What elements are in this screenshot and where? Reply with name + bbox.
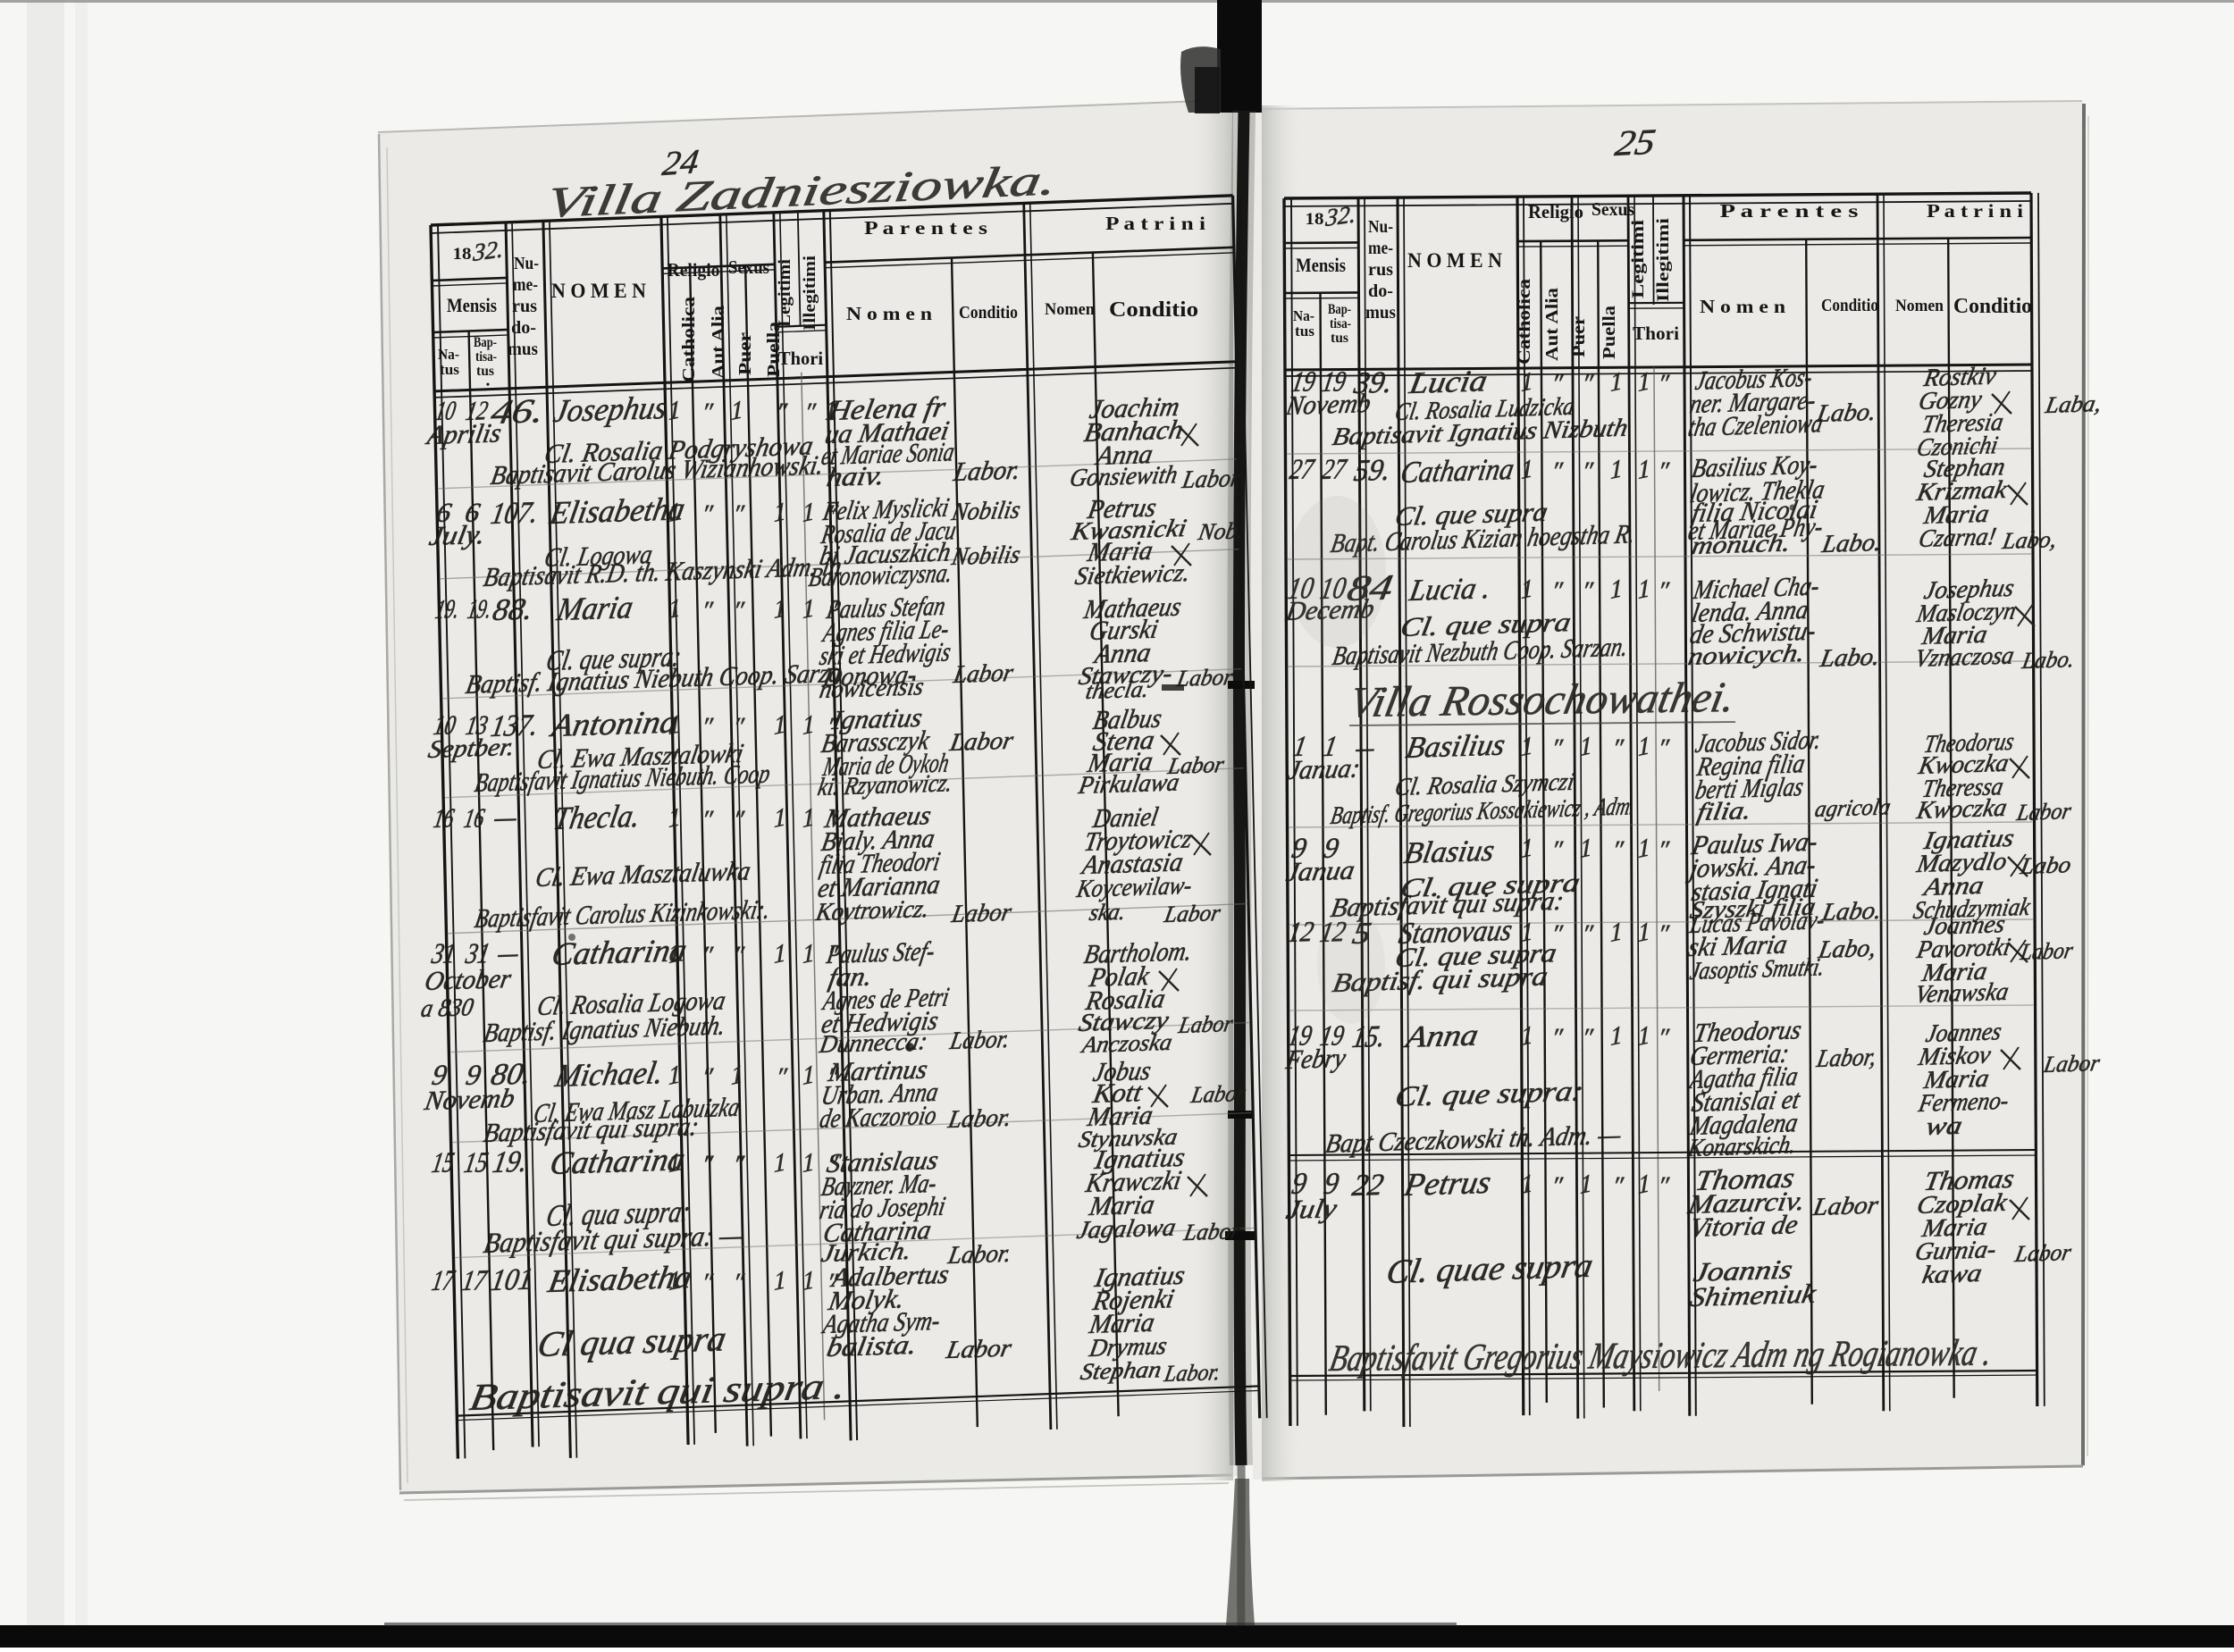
svg-text:1: 1 bbox=[802, 803, 815, 834]
svg-text:agricola: agricola bbox=[1813, 793, 1893, 821]
svg-text:Labor: Labor bbox=[944, 1335, 1015, 1364]
svg-text:1: 1 bbox=[668, 1266, 681, 1296]
svg-text:1: 1 bbox=[668, 498, 681, 528]
svg-text:Aprilis: Aprilis bbox=[424, 418, 504, 450]
svg-text:Gonsiewith: Gonsiewith bbox=[1068, 461, 1180, 492]
svg-text:1: 1 bbox=[1638, 1170, 1650, 1200]
svg-text:Catharina: Catharina bbox=[1398, 452, 1517, 490]
svg-text:Thecla.: Thecla. bbox=[551, 798, 643, 836]
svg-text:Vitoria de: Vitoria de bbox=[1688, 1209, 1801, 1243]
svg-text:Koytrowicz.: Koytrowicz. bbox=[813, 895, 931, 927]
svg-text:Labor,: Labor, bbox=[1814, 1044, 1878, 1073]
svg-text:1: 1 bbox=[731, 396, 743, 426]
svg-text:1: 1 bbox=[1521, 574, 1533, 605]
svg-text:1: 1 bbox=[1610, 367, 1623, 398]
svg-text:1: 1 bbox=[1638, 918, 1650, 948]
svg-text:rus: rus bbox=[512, 297, 537, 316]
svg-text:Mensis: Mensis bbox=[447, 294, 497, 316]
svg-text:Elisabetha: Elisabetha bbox=[547, 491, 688, 531]
svg-text:Nobilis: Nobilis bbox=[949, 541, 1022, 571]
svg-text:N o m e n: N o m e n bbox=[846, 303, 932, 324]
svg-text:1: 1 bbox=[668, 1148, 681, 1178]
svg-text:Laba,: Laba, bbox=[2043, 390, 2104, 418]
svg-text:1: 1 bbox=[1610, 455, 1623, 485]
svg-text:Vznaczosa: Vznaczosa bbox=[1913, 642, 2016, 673]
svg-text:tisa-: tisa- bbox=[1330, 316, 1351, 331]
svg-text:1: 1 bbox=[668, 939, 681, 969]
svg-text:1: 1 bbox=[668, 710, 681, 741]
svg-text:Legitimi: Legitimi bbox=[776, 259, 794, 327]
svg-text:1: 1 bbox=[1610, 574, 1623, 605]
svg-text:59.: 59. bbox=[1352, 453, 1394, 488]
svg-text:Febry: Febry bbox=[1283, 1043, 1348, 1075]
svg-text:Puella: Puella bbox=[1600, 306, 1619, 359]
svg-text:Koycewilaw-: Koycewilaw- bbox=[1074, 872, 1194, 903]
svg-text:Sexus: Sexus bbox=[1592, 198, 1634, 220]
svg-text:Labo.: Labo. bbox=[1818, 643, 1883, 673]
svg-text:Janua: Janua bbox=[1284, 855, 1357, 887]
svg-text:1: 1 bbox=[1638, 732, 1650, 762]
svg-text:1: 1 bbox=[1521, 455, 1533, 485]
svg-text:tus: tus bbox=[1331, 331, 1348, 346]
svg-text:Nomen: Nomen bbox=[1045, 300, 1095, 319]
svg-text:1: 1 bbox=[731, 1061, 743, 1091]
svg-text:thecla.: thecla. bbox=[1084, 676, 1151, 704]
svg-text:1: 1 bbox=[1521, 1021, 1533, 1052]
svg-text:1: 1 bbox=[1580, 732, 1592, 762]
svg-text:19.: 19. bbox=[491, 1145, 531, 1179]
svg-text:Conditio: Conditio bbox=[959, 303, 1018, 323]
svg-text:balista.: balista. bbox=[825, 1329, 920, 1363]
svg-text:Labor: Labor bbox=[1174, 664, 1236, 692]
svg-text:de Kaczoroio: de Kaczoroio bbox=[818, 1100, 939, 1134]
svg-text:do-: do- bbox=[1368, 281, 1393, 301]
svg-text:32.: 32. bbox=[472, 235, 505, 266]
svg-text:1: 1 bbox=[1638, 455, 1650, 485]
svg-text:Labor: Labor bbox=[2041, 1050, 2103, 1078]
svg-text:Lucia .: Lucia . bbox=[1407, 571, 1494, 608]
svg-text:Labor: Labor bbox=[947, 727, 1017, 757]
svg-text:Labo.: Labo. bbox=[1819, 529, 1885, 558]
svg-text:1: 1 bbox=[774, 1266, 786, 1296]
svg-text:kawa: kawa bbox=[1920, 1260, 1985, 1289]
svg-text:1: 1 bbox=[802, 498, 815, 528]
svg-text:a 830: a 830 bbox=[419, 994, 476, 1023]
svg-text:Blasius: Blasius bbox=[1402, 834, 1498, 870]
svg-text:1: 1 bbox=[802, 939, 815, 969]
svg-text:1: 1 bbox=[774, 710, 786, 741]
svg-text:1: 1 bbox=[1580, 834, 1592, 864]
svg-text:Labor.: Labor. bbox=[1162, 1359, 1222, 1387]
svg-text:Villa Rossochowathei.: Villa Rossochowathei. bbox=[1346, 674, 1739, 726]
svg-text:1: 1 bbox=[1580, 1170, 1592, 1200]
svg-text:1: 1 bbox=[1521, 1170, 1533, 1200]
svg-text:Thori: Thori bbox=[778, 348, 823, 369]
svg-text:Nu-: Nu- bbox=[514, 254, 539, 273]
svg-text:Sexus: Sexus bbox=[728, 256, 769, 278]
svg-text:Labo.: Labo. bbox=[1819, 897, 1885, 927]
svg-text:1: 1 bbox=[802, 1148, 815, 1178]
svg-text:1: 1 bbox=[1638, 834, 1650, 864]
svg-text:1: 1 bbox=[1610, 918, 1623, 948]
svg-text:Pirkulawa: Pirkulawa bbox=[1076, 769, 1181, 800]
svg-text:Labor: Labor bbox=[1162, 900, 1223, 927]
svg-text:Venawska: Venawska bbox=[1913, 978, 2011, 1009]
svg-text:1: 1 bbox=[802, 1266, 815, 1296]
svg-text:1: 1 bbox=[802, 594, 815, 625]
svg-text:Religio: Religio bbox=[1528, 201, 1583, 222]
svg-text:1: 1 bbox=[1638, 367, 1650, 398]
svg-text:15.: 15. bbox=[1350, 1019, 1389, 1054]
svg-text:Michael.: Michael. bbox=[552, 1054, 667, 1094]
svg-text:Labor: Labor bbox=[2014, 798, 2074, 826]
svg-text:Nobilis: Nobilis bbox=[949, 497, 1022, 526]
svg-text:Nomen: Nomen bbox=[1895, 297, 1944, 315]
svg-text:me-: me- bbox=[1368, 239, 1393, 258]
svg-text:Czarna!: Czarna! bbox=[1917, 523, 1999, 553]
svg-text:Conditio: Conditio bbox=[1953, 295, 2032, 318]
svg-text:Labor: Labor bbox=[1181, 1218, 1243, 1245]
svg-text:Anczoska: Anczoska bbox=[1079, 1029, 1174, 1058]
svg-text:Kwoczka: Kwoczka bbox=[1914, 794, 2009, 825]
svg-text:1: 1 bbox=[1521, 367, 1533, 398]
svg-text:Catholica: Catholica bbox=[679, 297, 699, 382]
svg-text:Novemb: Novemb bbox=[1283, 388, 1373, 421]
svg-text:1: 1 bbox=[1638, 1021, 1650, 1052]
svg-text:July: July bbox=[1284, 1193, 1340, 1225]
svg-text:Cl. quae supra: Cl. quae supra bbox=[1383, 1247, 1595, 1291]
svg-text:mus: mus bbox=[508, 340, 538, 359]
svg-text:Konarskich.: Konarskich. bbox=[1685, 1131, 1798, 1162]
svg-text:Aut Alia: Aut Alia bbox=[709, 306, 728, 379]
svg-text:25: 25 bbox=[1613, 122, 1659, 164]
svg-text:Novemb: Novemb bbox=[422, 1083, 517, 1116]
svg-text:Shimeniuk: Shimeniuk bbox=[1688, 1279, 1819, 1312]
svg-text:wa: wa bbox=[1924, 1112, 1965, 1141]
svg-text:N o m e n: N o m e n bbox=[1700, 296, 1785, 317]
svg-text:Labor.: Labor. bbox=[945, 1104, 1013, 1134]
svg-text:1: 1 bbox=[774, 594, 786, 625]
svg-text:monuch.: monuch. bbox=[1690, 530, 1793, 560]
svg-text:1: 1 bbox=[668, 396, 681, 426]
svg-text:Catholica: Catholica bbox=[1515, 279, 1534, 365]
svg-text:Religio: Religio bbox=[668, 259, 720, 281]
svg-text:88.: 88. bbox=[491, 592, 536, 627]
svg-text:Labor: Labor bbox=[1810, 1192, 1882, 1221]
svg-text:Labor: Labor bbox=[1176, 1010, 1236, 1038]
svg-text:Petrus: Petrus bbox=[1401, 1164, 1494, 1203]
svg-text:Catharina: Catharina bbox=[548, 1141, 688, 1181]
svg-text:107.: 107. bbox=[489, 496, 542, 531]
svg-text:Labo.: Labo. bbox=[2020, 646, 2077, 674]
svg-text:me-: me- bbox=[513, 275, 538, 295]
svg-text:Basilius: Basilius bbox=[1404, 728, 1508, 765]
svg-text:October: October bbox=[423, 963, 514, 996]
svg-text:Labor: Labor bbox=[951, 659, 1016, 689]
svg-text:haiv.: haiv. bbox=[825, 460, 887, 492]
svg-text:Conditio: Conditio bbox=[1821, 296, 1878, 315]
svg-text:Janua:: Janua: bbox=[1286, 753, 1363, 785]
svg-text:Nu-: Nu- bbox=[1368, 217, 1393, 237]
svg-text:tus: tus bbox=[476, 364, 494, 379]
svg-text:1: 1 bbox=[774, 498, 786, 528]
svg-text:•: • bbox=[486, 378, 490, 390]
svg-text:July.: July. bbox=[427, 519, 488, 551]
svg-text:Legitimi: Legitimi bbox=[1629, 220, 1648, 298]
svg-text:mus: mus bbox=[1365, 303, 1396, 323]
svg-text:Labor: Labor bbox=[1188, 1080, 1248, 1108]
svg-text:Puer: Puer bbox=[735, 332, 755, 375]
svg-text:Labor: Labor bbox=[2018, 937, 2076, 965]
svg-text:Jasoptis Smutki.: Jasoptis Smutki. bbox=[1688, 953, 1827, 985]
svg-text:1: 1 bbox=[774, 803, 786, 834]
svg-text:tha Czeleniowa: tha Czeleniowa bbox=[1686, 407, 1826, 442]
svg-text:1: 1 bbox=[774, 939, 786, 969]
svg-text:22: 22 bbox=[1350, 1168, 1387, 1203]
svg-text:Lucia: Lucia bbox=[1406, 364, 1490, 400]
svg-text:Sietkiewicz.: Sietkiewicz. bbox=[1073, 559, 1192, 591]
svg-text:Baptisfavit Gregorius Maysiowi: Baptisfavit Gregorius Maysiowicz Adm ng … bbox=[1326, 1332, 1995, 1379]
svg-text:101: 101 bbox=[489, 1262, 536, 1297]
svg-text:N O M E N: N O M E N bbox=[1407, 249, 1502, 272]
svg-text:Puer: Puer bbox=[1569, 316, 1589, 357]
svg-text:nowicych.: nowicych. bbox=[1686, 640, 1807, 671]
svg-text:Jagalowa: Jagalowa bbox=[1075, 1214, 1178, 1245]
svg-text:1: 1 bbox=[802, 1061, 815, 1091]
svg-text:nowicensis: nowicensis bbox=[818, 673, 926, 703]
svg-text:P a t r i n i: P a t r i n i bbox=[1927, 200, 2023, 222]
svg-text:Cl qua supra: Cl qua supra bbox=[534, 1319, 729, 1364]
svg-text:do-: do- bbox=[511, 318, 536, 338]
svg-text:Labor.: Labor. bbox=[947, 1026, 1012, 1055]
svg-text:N O M E N: N O M E N bbox=[551, 280, 646, 302]
svg-text:Cl. que supra:: Cl. que supra: bbox=[1393, 1075, 1586, 1112]
svg-text:1: 1 bbox=[774, 1148, 786, 1178]
svg-text:Thori: Thori bbox=[1633, 323, 1679, 344]
svg-text:Nob.: Nob. bbox=[1196, 518, 1246, 545]
svg-text:P a t r i n i: P a t r i n i bbox=[1105, 213, 1205, 234]
svg-text:rus: rus bbox=[1368, 260, 1393, 280]
svg-text:Conditio: Conditio bbox=[1109, 298, 1198, 322]
svg-text:1: 1 bbox=[1521, 834, 1533, 864]
svg-text:Stephan: Stephan bbox=[1079, 1356, 1163, 1385]
svg-text:filia.: filia. bbox=[1695, 797, 1754, 826]
svg-text:tus: tus bbox=[440, 361, 459, 378]
svg-text:Baronowiczysna.: Baronowiczysna. bbox=[807, 558, 955, 592]
svg-text:Aut Alia: Aut Alia bbox=[1542, 288, 1562, 361]
svg-text:Septber.: Septber. bbox=[426, 734, 517, 764]
svg-text:Antonina: Antonina bbox=[547, 704, 680, 743]
svg-text:Labor: Labor bbox=[949, 899, 1014, 928]
svg-text:Labor.: Labor. bbox=[945, 1240, 1013, 1270]
svg-text:tus: tus bbox=[1295, 323, 1314, 340]
svg-text:1: 1 bbox=[1521, 732, 1533, 762]
svg-text:Josephus: Josephus bbox=[551, 390, 670, 429]
svg-text:Labo.: Labo. bbox=[1814, 398, 1879, 428]
svg-text:1: 1 bbox=[1638, 574, 1650, 605]
svg-text:Labor.: Labor. bbox=[951, 455, 1023, 487]
svg-text:Labor: Labor bbox=[2012, 1239, 2074, 1267]
svg-text:Mensis: Mensis bbox=[1296, 254, 1346, 276]
svg-text:Labo,: Labo, bbox=[2000, 526, 2059, 554]
svg-text:Labo,: Labo, bbox=[1816, 935, 1878, 964]
svg-text:18: 18 bbox=[453, 245, 472, 264]
svg-text:32.: 32. bbox=[1324, 200, 1357, 231]
svg-text:Bap-: Bap- bbox=[474, 335, 497, 350]
svg-text:P a r e n t e s: P a r e n t e s bbox=[1720, 200, 1859, 222]
svg-text:Illegitimi: Illegitimi bbox=[1654, 218, 1673, 302]
svg-text:Labo: Labo bbox=[2018, 851, 2073, 879]
svg-text:1: 1 bbox=[1610, 1021, 1623, 1052]
svg-text:ki. Rzyanowicz.: ki. Rzyanowicz. bbox=[816, 769, 954, 801]
svg-text:1: 1 bbox=[668, 803, 681, 834]
svg-text:Maria: Maria bbox=[554, 590, 636, 627]
svg-text:1: 1 bbox=[802, 710, 815, 741]
svg-text:1: 1 bbox=[668, 594, 681, 625]
svg-text:tisa-: tisa- bbox=[475, 349, 497, 365]
svg-text:Labor: Labor bbox=[1180, 465, 1243, 494]
svg-text:P a r e n t e s: P a r e n t e s bbox=[864, 217, 987, 239]
svg-text:18: 18 bbox=[1306, 210, 1324, 229]
svg-text:Illegitimi: Illegitimi bbox=[801, 256, 819, 331]
svg-text:ska.: ska. bbox=[1088, 899, 1128, 926]
svg-text:Anna: Anna bbox=[1401, 1019, 1481, 1054]
svg-text:1: 1 bbox=[668, 1061, 681, 1091]
svg-text:Bap-: Bap- bbox=[1328, 302, 1351, 317]
